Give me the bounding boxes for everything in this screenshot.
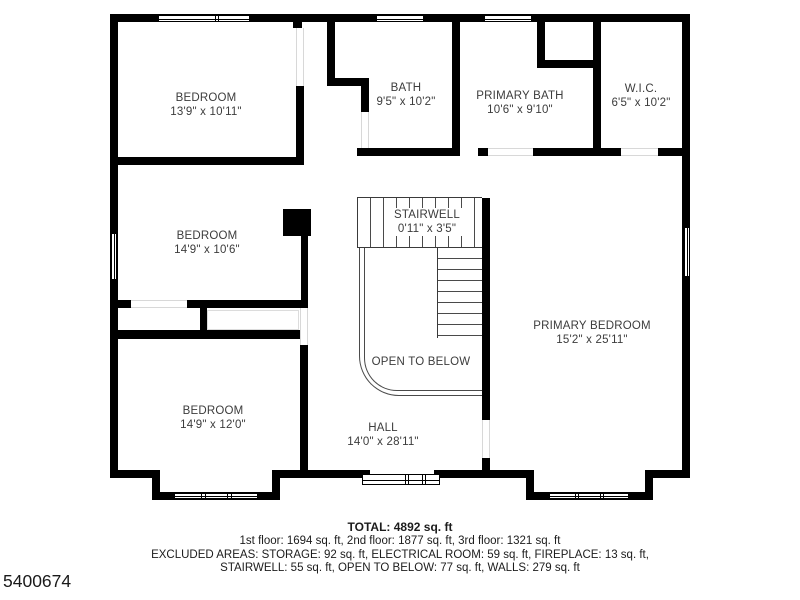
room-dims: 10'6" x 9'10" bbox=[476, 103, 563, 117]
room-name: W.I.C. bbox=[611, 82, 670, 96]
window bbox=[376, 15, 424, 22]
stair-entry-stub bbox=[478, 148, 488, 156]
room-name: BATH bbox=[376, 81, 435, 95]
room-dims: 15'2" x 25'11" bbox=[533, 333, 651, 347]
room-dims: 0'11" x 3'5" bbox=[394, 222, 460, 236]
bedroom3-top-wall bbox=[110, 330, 308, 339]
exterior-wall-bottom-right bbox=[645, 470, 690, 478]
room-label-wic: W.I.C. 6'5" x 10'2" bbox=[611, 82, 670, 110]
area-summary: TOTAL: 4892 sq. ft 1st floor: 1694 sq. f… bbox=[0, 520, 800, 576]
stair-right-wall-lower bbox=[482, 458, 490, 478]
shower-wall-horizontal bbox=[537, 60, 599, 68]
bath-jog-vertical bbox=[361, 86, 369, 112]
window bbox=[158, 15, 250, 22]
bedroom2-bottom-wall-right bbox=[187, 300, 308, 308]
stair-treads-right bbox=[437, 248, 482, 338]
summary-total: TOTAL: 4892 sq. ft bbox=[0, 520, 800, 535]
exterior-wall-bottom-mid-1 bbox=[272, 470, 370, 478]
room-name: STAIRWELL bbox=[394, 208, 460, 222]
bath-bottom-wall bbox=[357, 148, 458, 156]
room-dims: 14'0" x 28'11" bbox=[347, 435, 418, 449]
bath-left-wall bbox=[327, 22, 335, 84]
bedroom1-right-wall bbox=[296, 86, 304, 157]
window bbox=[362, 474, 440, 485]
room-name: PRIMARY BATH bbox=[476, 89, 563, 103]
room-name: OPEN TO BELOW bbox=[372, 355, 471, 369]
closet-divider bbox=[200, 308, 207, 332]
primarybath-bottom-wall bbox=[533, 148, 621, 156]
room-dims: 14'9" x 12'0" bbox=[180, 418, 246, 432]
window bbox=[174, 493, 258, 499]
bedroom2-bottom-wall-left bbox=[117, 300, 131, 308]
room-label-bedroom-3: BEDROOM 14'9" x 12'0" bbox=[180, 404, 246, 432]
bedroom2-right-wall bbox=[301, 236, 308, 300]
stair-right-wall bbox=[482, 198, 490, 420]
room-label-bedroom-2: BEDROOM 14'9" x 10'6" bbox=[174, 229, 240, 257]
room-dims: 6'5" x 10'2" bbox=[611, 96, 670, 110]
shower-wall-vertical bbox=[537, 22, 545, 62]
room-name: BEDROOM bbox=[174, 229, 240, 243]
room-label-bedroom-1: BEDROOM 13'9" x 10'11" bbox=[170, 91, 241, 119]
bedroom3-hall-wall bbox=[300, 345, 308, 470]
room-label-primary-bath: PRIMARY BATH 10'6" x 9'10" bbox=[476, 89, 563, 117]
primarybath-wic-divider bbox=[593, 22, 601, 156]
bedroom2-door-opening bbox=[131, 300, 187, 308]
room-dims: 9'5" x 10'2" bbox=[376, 95, 435, 109]
room-dims: 14'9" x 10'6" bbox=[174, 243, 240, 257]
room-name: PRIMARY BEDROOM bbox=[533, 319, 651, 333]
bath-door-opening bbox=[361, 112, 369, 148]
bedroom1-bedroom2-divider bbox=[110, 157, 304, 165]
summary-floors: 1st floor: 1694 sq. ft, 2nd floor: 1877 … bbox=[0, 535, 800, 549]
room-name: BEDROOM bbox=[180, 404, 246, 418]
listing-photo-id: 5400674 bbox=[3, 571, 71, 592]
window bbox=[684, 227, 690, 277]
bedroom1-door-opening bbox=[296, 28, 304, 86]
room-label-bath: BATH 9'5" x 10'2" bbox=[376, 81, 435, 109]
room-label-hall: HALL 14'0" x 28'11" bbox=[347, 421, 418, 449]
window bbox=[484, 15, 532, 22]
window bbox=[111, 233, 117, 280]
wic-bottom-wall bbox=[658, 148, 684, 156]
closet-outline bbox=[207, 310, 299, 330]
floor-plan: BEDROOM 13'9" x 10'11" BATH 9'5" x 10'2"… bbox=[0, 0, 800, 600]
fireplace bbox=[283, 209, 311, 236]
room-dims: 13'9" x 10'11" bbox=[170, 105, 241, 119]
bath-primarybath-divider bbox=[452, 22, 460, 156]
room-name: HALL bbox=[347, 421, 418, 435]
room-label-open-to-below: OPEN TO BELOW bbox=[372, 355, 471, 369]
bedroom3-door-opening bbox=[300, 308, 308, 345]
summary-excluded-1: EXCLUDED AREAS: STORAGE: 92 sq. ft, ELEC… bbox=[0, 549, 800, 563]
summary-excluded-2: STAIRWELL: 55 sq. ft, OPEN TO BELOW: 77 … bbox=[0, 562, 800, 576]
wic-door-opening bbox=[621, 148, 658, 156]
primarybath-door-opening bbox=[488, 148, 533, 156]
primary-bedroom-door-opening bbox=[482, 420, 490, 458]
bath-jog-horizontal bbox=[327, 78, 369, 86]
room-label-primary-bedroom: PRIMARY BEDROOM 15'2" x 25'11" bbox=[533, 319, 651, 347]
room-label-stairwell: STAIRWELL 0'11" x 3'5" bbox=[391, 208, 463, 236]
window bbox=[549, 493, 629, 499]
room-name: BEDROOM bbox=[170, 91, 241, 105]
